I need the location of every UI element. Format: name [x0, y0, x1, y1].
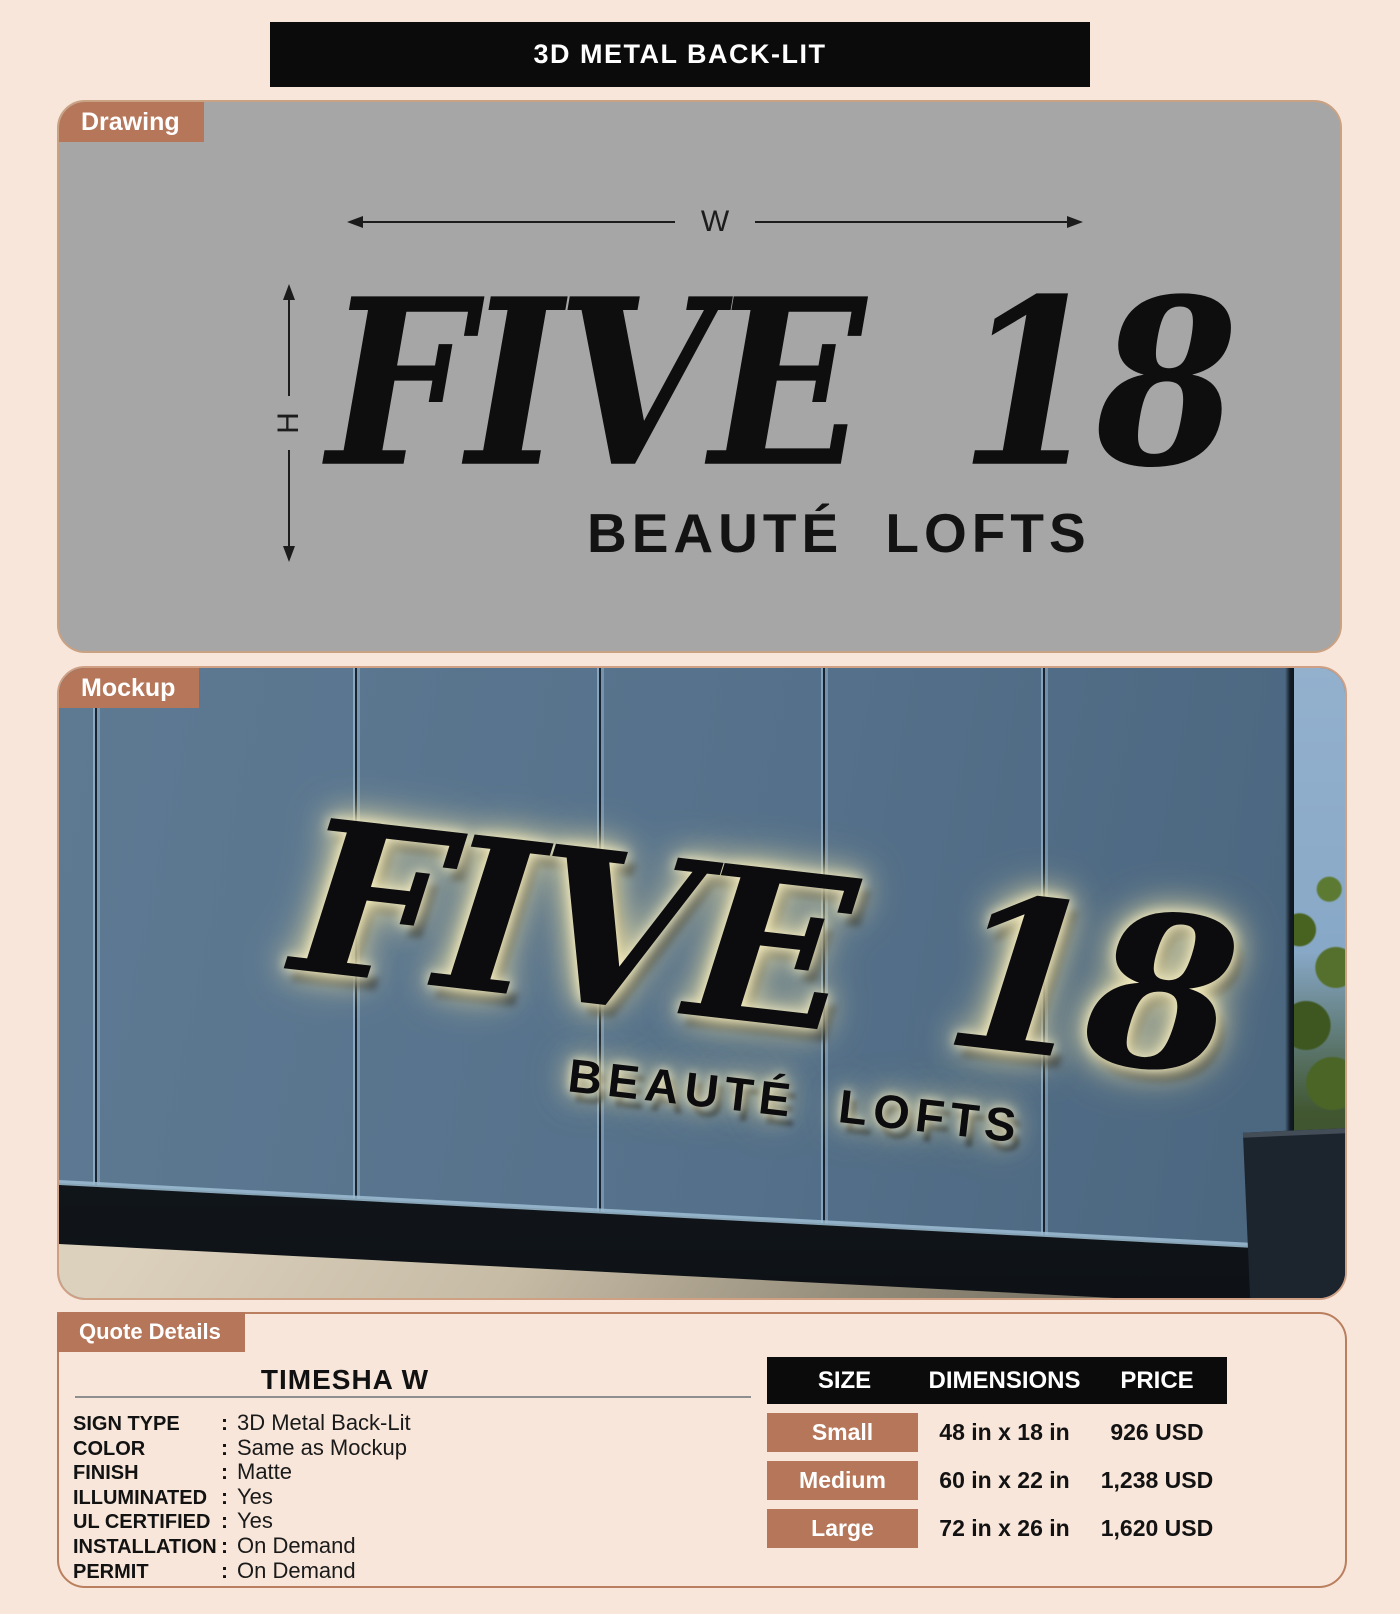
quote-sheet-page: 3D METAL BACK-LIT Drawing W H FIVE 18 BE… — [0, 0, 1400, 1614]
pricing-table-header: SIZE DIMENSIONS PRICE — [767, 1357, 1227, 1404]
quote-section-tab: Quote Details — [57, 1312, 245, 1352]
spec-row: INSTALLATION:On Demand — [73, 1533, 411, 1558]
spec-colon: : — [221, 1437, 237, 1461]
drawing-panel: Drawing W H FIVE 18 BEAUTÉ LOFTS — [57, 100, 1342, 653]
spec-value: 3D Metal Back-Lit — [237, 1410, 411, 1436]
mockup-building-corner — [1243, 1127, 1347, 1300]
table-row: Small 48 in x 18 in 926 USD — [767, 1413, 1227, 1452]
size-badge: Small — [767, 1413, 918, 1452]
drawing-logo-script: FIVE 18 — [327, 270, 1127, 500]
height-label: H — [262, 412, 316, 434]
size-badge: Large — [767, 1509, 918, 1548]
arrow-down-icon — [283, 546, 295, 562]
spec-row: SIGN TYPE:3D Metal Back-Lit — [73, 1410, 411, 1435]
column-header-dimensions: DIMENSIONS — [922, 1367, 1087, 1395]
customer-name: TIMESHA W — [75, 1364, 615, 1396]
spec-value: On Demand — [237, 1558, 356, 1584]
spec-colon: : — [221, 1461, 237, 1485]
spec-label: COLOR — [73, 1438, 221, 1461]
width-label: W — [675, 205, 755, 239]
dimensions-value: 72 in x 26 in — [922, 1515, 1087, 1542]
mockup-section-tab: Mockup — [59, 668, 199, 708]
spec-colon: : — [221, 1535, 237, 1559]
spec-value: Matte — [237, 1459, 292, 1485]
spec-colon: : — [221, 1412, 237, 1436]
table-row: Large 72 in x 26 in 1,620 USD — [767, 1509, 1227, 1548]
spec-row: COLOR:Same as Mockup — [73, 1435, 411, 1460]
spec-label: UL CERTIFIED — [73, 1511, 221, 1534]
size-badge: Medium — [767, 1461, 918, 1500]
pricing-table: SIZE DIMENSIONS PRICE Small 48 in x 18 i… — [767, 1357, 1227, 1548]
price-value: 1,238 USD — [1087, 1467, 1227, 1494]
page-title-bar: 3D METAL BACK-LIT — [270, 22, 1090, 87]
spec-row: UL CERTIFIED:Yes — [73, 1508, 411, 1533]
spec-value: Same as Mockup — [237, 1435, 407, 1461]
spec-label: PERMIT — [73, 1561, 221, 1584]
spec-label: FINISH — [73, 1462, 221, 1485]
spec-label: INSTALLATION — [73, 1536, 221, 1559]
dimensions-value: 48 in x 18 in — [922, 1419, 1087, 1446]
arrow-right-icon — [1067, 216, 1083, 228]
spec-label: SIGN TYPE — [73, 1413, 221, 1436]
spec-list: SIGN TYPE:3D Metal Back-Lit COLOR:Same a… — [73, 1410, 411, 1582]
drawing-logo-subtext: BEAUTÉ LOFTS — [587, 501, 1091, 565]
spec-colon: : — [221, 1560, 237, 1584]
height-dimension-arrow: H — [272, 284, 306, 562]
quote-details-panel: Quote Details TIMESHA W SIGN TYPE:3D Met… — [57, 1312, 1347, 1588]
spec-value: Yes — [237, 1508, 273, 1534]
price-value: 1,620 USD — [1087, 1515, 1227, 1542]
spec-label: ILLUMINATED — [73, 1487, 221, 1510]
column-header-price: PRICE — [1087, 1367, 1227, 1395]
spec-colon: : — [221, 1510, 237, 1534]
spec-value: On Demand — [237, 1533, 356, 1559]
spec-row: FINISH:Matte — [73, 1459, 411, 1484]
dimensions-value: 60 in x 22 in — [922, 1467, 1087, 1494]
spec-row: ILLUMINATED:Yes — [73, 1484, 411, 1509]
arrow-left-icon — [347, 216, 363, 228]
spec-colon: : — [221, 1486, 237, 1510]
price-value: 926 USD — [1087, 1419, 1227, 1446]
spec-value: Yes — [237, 1484, 273, 1510]
mockup-panel: FIVE 18 BEAUTÉ LOFTS Mockup — [57, 666, 1347, 1300]
width-dimension-arrow: W — [347, 206, 1083, 238]
column-header-size: SIZE — [767, 1367, 922, 1395]
arrow-up-icon — [283, 284, 295, 300]
drawing-section-tab: Drawing — [59, 102, 204, 142]
divider-line — [75, 1396, 751, 1398]
page-title: 3D METAL BACK-LIT — [534, 39, 827, 70]
table-row: Medium 60 in x 22 in 1,238 USD — [767, 1461, 1227, 1500]
spec-row: PERMIT:On Demand — [73, 1558, 411, 1583]
